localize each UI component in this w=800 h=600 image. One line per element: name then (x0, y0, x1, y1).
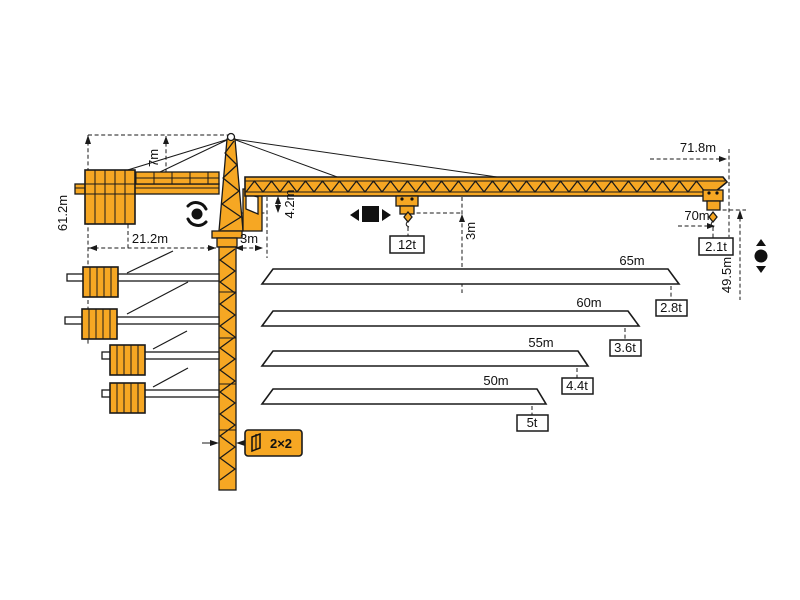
arrowhead (275, 205, 281, 213)
jib-variant-outline (262, 311, 639, 326)
counter-jib-length-label: 21.2m (132, 231, 168, 246)
jib-variant-60m (262, 311, 641, 356)
left-arrow (350, 209, 359, 221)
apex-pin (228, 134, 235, 141)
arrowhead (236, 440, 245, 446)
trolley-frame (703, 190, 723, 201)
turntable-upper (212, 231, 242, 238)
turntable-lower (217, 238, 237, 247)
hoist-dot (755, 250, 768, 263)
hook-height-label: 49.5m (719, 257, 734, 293)
counterweight-config-row (102, 331, 219, 375)
variant-capacity-label: 4.4t (566, 378, 588, 393)
jib-variant-65m (262, 269, 687, 316)
tie-bar (127, 251, 173, 273)
hook-clearance-label: 3m (463, 222, 478, 240)
arrowhead (163, 136, 169, 144)
counterweight-slab (85, 170, 135, 224)
jib-tie-rope (233, 139, 340, 178)
jib-overall-length-label: 71.8m (680, 140, 716, 155)
tip-capacity-label: 2.1t (705, 239, 727, 254)
tie-bar (127, 282, 188, 314)
trolley-wheel (707, 191, 710, 194)
right-arrow (382, 209, 391, 221)
arrowhead (85, 135, 91, 144)
arrowhead (210, 440, 219, 446)
counterweight-block (83, 267, 118, 297)
arrowhead (275, 196, 281, 204)
jib-depth-label: 4.2m (282, 190, 297, 219)
trolley-wheel (410, 197, 413, 200)
travel-square (362, 206, 379, 222)
max-capacity-label: 12t (398, 237, 416, 252)
variant-length-label: 55m (528, 335, 553, 350)
down-arrow (756, 266, 766, 273)
hook (709, 212, 717, 222)
jib-tie-rope (233, 139, 497, 177)
counterweight-block (110, 345, 145, 375)
variant-capacity-label: 5t (527, 415, 538, 430)
diagram-canvas: 61.2m 7m 21.2m 3m 4.2m 3m 12t 71.8m 70m … (0, 0, 800, 600)
tower-height-label: 61.2m (55, 195, 70, 231)
main-jib (245, 177, 727, 196)
trolley-travel-icon (350, 206, 391, 222)
tie-bar (153, 368, 188, 387)
arrowhead (719, 156, 727, 162)
counter-clearance-label: 3m (240, 231, 258, 246)
jib-variant-outline (262, 351, 588, 366)
trolley-wheel (400, 197, 403, 200)
variant-length-label: 50m (483, 373, 508, 388)
slew-arc (188, 203, 206, 209)
counterweight-config-row (67, 251, 219, 297)
variant-length-label: 60m (576, 295, 601, 310)
head-height-label: 7m (146, 149, 161, 167)
tie-bar (153, 331, 187, 349)
arrowhead (459, 214, 465, 222)
jib-variant-55m (262, 351, 593, 394)
up-arrow (756, 239, 766, 246)
arrowhead (208, 245, 216, 251)
jib-body (245, 177, 727, 196)
variant-length-label: 65m (619, 253, 644, 268)
jib-variant-outline (262, 389, 546, 404)
slew-dot (192, 209, 203, 220)
slewing-icon (188, 203, 206, 226)
slew-arc (188, 219, 206, 225)
arrowhead (89, 245, 97, 251)
mast-section-value: 2×2 (270, 436, 292, 451)
trolley-wheel (715, 191, 718, 194)
trolley-frame (396, 196, 418, 206)
jib-variant-outline (262, 269, 679, 284)
jib-variant-50m (262, 389, 548, 431)
variant-capacity-label: 3.6t (614, 340, 636, 355)
hoisting-icon (755, 239, 768, 273)
arrowhead (737, 210, 743, 219)
counterweight-block (82, 309, 117, 339)
max-radius-label: 70m (684, 208, 709, 223)
variant-capacity-label: 2.8t (660, 300, 682, 315)
counter-jib-tie-rope (160, 139, 229, 172)
crane-load-diagram: 61.2m 7m 21.2m 3m 4.2m 3m 12t 71.8m 70m … (0, 0, 800, 600)
trolley-mid (396, 196, 418, 227)
counterweight-block (110, 383, 145, 413)
